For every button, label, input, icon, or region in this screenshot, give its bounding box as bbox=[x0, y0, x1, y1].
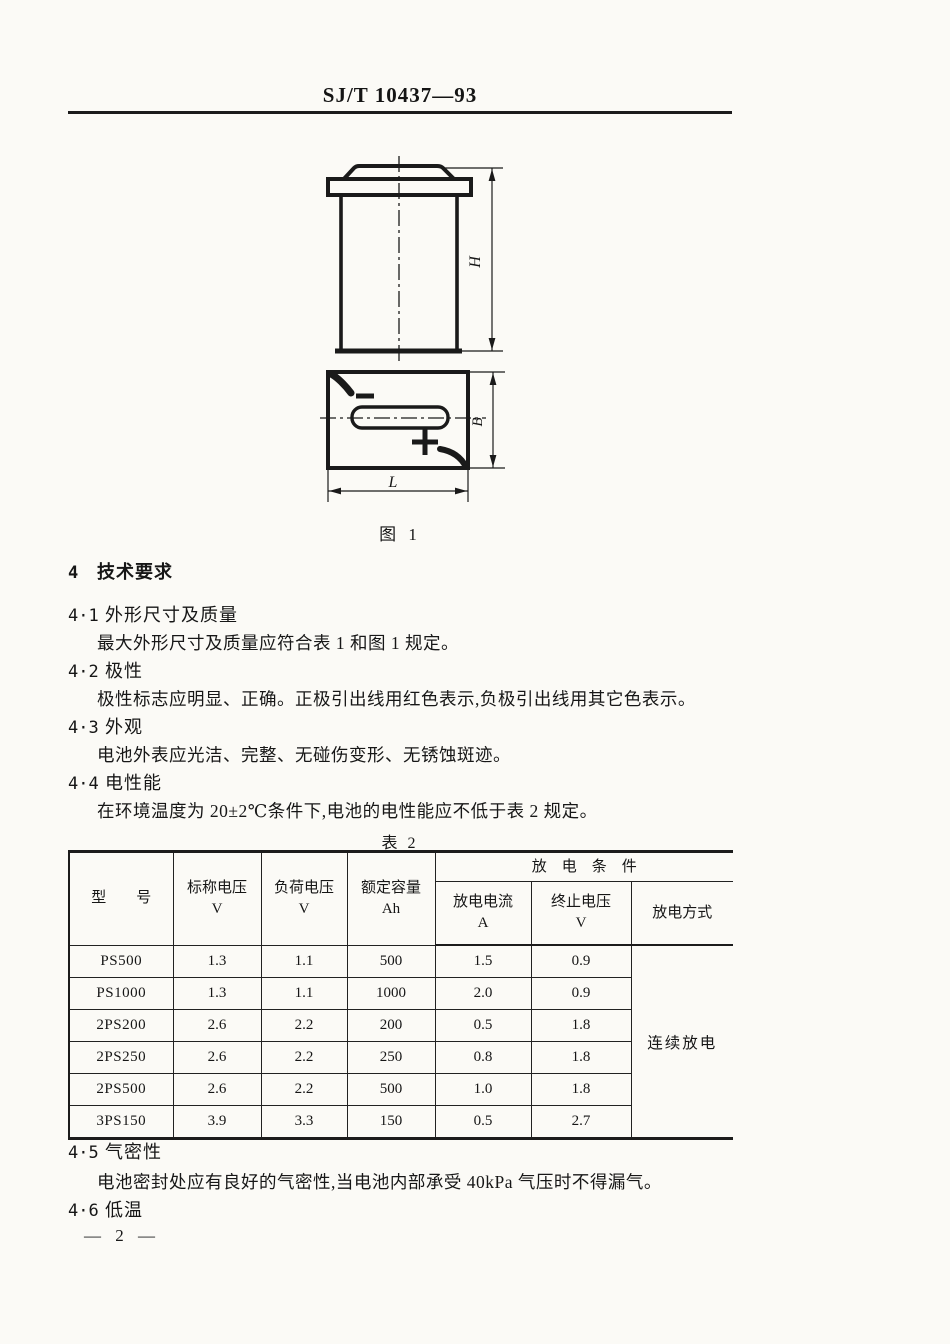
section-number: 4·3 bbox=[68, 717, 105, 740]
cell-capacity: 500 bbox=[347, 945, 435, 978]
cell-nominal: 2.6 bbox=[173, 1042, 261, 1074]
cell-nominal: 2.6 bbox=[173, 1074, 261, 1106]
scanned-standard-page: { "page": { "header_code": "SJ/T 10437—9… bbox=[0, 0, 950, 1344]
section-number: 4·6 bbox=[68, 1200, 105, 1223]
col-header-discharge-mode: 放电方式 bbox=[631, 882, 733, 946]
cell-current: 0.5 bbox=[435, 1010, 531, 1042]
col-header-rated-capacity: 额定容量 Ah bbox=[347, 852, 435, 946]
cell-model: PS1000 bbox=[69, 978, 173, 1010]
cell-load: 2.2 bbox=[261, 1010, 347, 1042]
group-header-discharge-conditions: 放 电 条 件 bbox=[435, 852, 733, 882]
section-heading-4-1: 4·1外形尺寸及质量 bbox=[68, 604, 238, 628]
cell-current: 0.8 bbox=[435, 1042, 531, 1074]
cell-capacity: 150 bbox=[347, 1106, 435, 1139]
section-title: 外观 bbox=[105, 717, 143, 737]
cell-current: 1.0 bbox=[435, 1074, 531, 1106]
dim-label-B: B bbox=[470, 417, 486, 426]
figure-caption: 图 1 bbox=[68, 520, 732, 545]
section-body-4-2: 极性标志应明显、正确。正极引出线用红色表示,负极引出线用其它色表示。 bbox=[97, 688, 696, 711]
section-heading-4-6: 4·6低温 bbox=[68, 1199, 143, 1223]
section-number: 4·1 bbox=[68, 605, 105, 628]
col-header-load-voltage: 负荷电压 V bbox=[261, 852, 347, 946]
section-heading-4-4: 4·4电性能 bbox=[68, 772, 162, 796]
section-title: 外形尺寸及质量 bbox=[105, 605, 238, 625]
cell-capacity: 500 bbox=[347, 1074, 435, 1106]
section-heading-4-3: 4·3外观 bbox=[68, 716, 143, 740]
cell-capacity: 250 bbox=[347, 1042, 435, 1074]
cell-load: 2.2 bbox=[261, 1042, 347, 1074]
cell-end-voltage: 1.8 bbox=[531, 1010, 631, 1042]
electrical-spec-table: 型 号 标称电压 V 负荷电压 V 额定容量 Ah 放 电 条 件 放电电流 A… bbox=[68, 850, 733, 1140]
cell-model: 2PS500 bbox=[69, 1074, 173, 1106]
cell-nominal: 1.3 bbox=[173, 945, 261, 978]
section-number: 4 bbox=[68, 562, 97, 585]
cell-capacity: 200 bbox=[347, 1010, 435, 1042]
battery-top-view: B L bbox=[320, 372, 505, 502]
section-heading-4: 4技术要求 bbox=[68, 561, 173, 585]
dim-label-L: L bbox=[388, 474, 398, 491]
cell-current: 0.5 bbox=[435, 1106, 531, 1139]
cell-nominal: 1.3 bbox=[173, 978, 261, 1010]
cell-end-voltage: 2.7 bbox=[531, 1106, 631, 1139]
page-number: — 2 — bbox=[84, 1226, 155, 1246]
section-title: 低温 bbox=[105, 1200, 143, 1220]
section-heading-4-2: 4·2极性 bbox=[68, 660, 143, 684]
cell-model: 2PS250 bbox=[69, 1042, 173, 1074]
section-body-4-4: 在环境温度为 20±2℃条件下,电池的电性能应不低于表 2 规定。 bbox=[97, 800, 598, 823]
cell-capacity: 1000 bbox=[347, 978, 435, 1010]
cell-model: 3PS150 bbox=[69, 1106, 173, 1139]
section-title: 电性能 bbox=[105, 773, 162, 793]
cell-end-voltage: 1.8 bbox=[531, 1074, 631, 1106]
dim-label-H: H bbox=[467, 255, 484, 269]
col-header-end-voltage: 终止电压 V bbox=[531, 882, 631, 946]
battery-side-view: H bbox=[328, 156, 503, 364]
cell-current: 1.5 bbox=[435, 945, 531, 978]
dimension-B: B bbox=[470, 372, 505, 468]
cell-model: 2PS200 bbox=[69, 1010, 173, 1042]
section-title: 技术要求 bbox=[97, 562, 173, 582]
cell-end-voltage: 0.9 bbox=[531, 978, 631, 1010]
section-title: 极性 bbox=[105, 661, 143, 681]
dimension-L: L bbox=[328, 470, 468, 502]
section-body-4-1: 最大外形尺寸及质量应符合表 1 和图 1 规定。 bbox=[97, 632, 459, 655]
section-number: 4·4 bbox=[68, 773, 105, 796]
cell-end-voltage: 1.8 bbox=[531, 1042, 631, 1074]
col-header-discharge-current: 放电电流 A bbox=[435, 882, 531, 946]
cell-current: 2.0 bbox=[435, 978, 531, 1010]
section-body-4-5: 电池密封处应有良好的气密性,当电池内部承受 40kPa 气压时不得漏气。 bbox=[97, 1171, 662, 1194]
table-row: PS500 1.3 1.1 500 1.5 0.9 连续放电 bbox=[69, 945, 733, 978]
col-header-model: 型 号 bbox=[69, 852, 173, 946]
cell-discharge-mode: 连续放电 bbox=[631, 945, 733, 1139]
cell-load: 1.1 bbox=[261, 945, 347, 978]
figure-battery-outline: H B L bbox=[270, 148, 520, 543]
cell-load: 3.3 bbox=[261, 1106, 347, 1139]
cell-model: PS500 bbox=[69, 945, 173, 978]
cell-load: 1.1 bbox=[261, 978, 347, 1010]
cell-nominal: 2.6 bbox=[173, 1010, 261, 1042]
section-title: 气密性 bbox=[105, 1142, 162, 1162]
section-body-4-3: 电池外表应光洁、完整、无碰伤变形、无锈蚀斑迹。 bbox=[97, 744, 511, 767]
section-number: 4·2 bbox=[68, 661, 105, 684]
section-number: 4·5 bbox=[68, 1142, 105, 1165]
header-rule bbox=[68, 111, 732, 114]
cell-end-voltage: 0.9 bbox=[531, 945, 631, 978]
cell-nominal: 3.9 bbox=[173, 1106, 261, 1139]
col-header-nominal-voltage: 标称电压 V bbox=[173, 852, 261, 946]
cell-load: 2.2 bbox=[261, 1074, 347, 1106]
section-heading-4-5: 4·5气密性 bbox=[68, 1141, 162, 1165]
standard-number: SJ/T 10437—93 bbox=[68, 83, 732, 108]
